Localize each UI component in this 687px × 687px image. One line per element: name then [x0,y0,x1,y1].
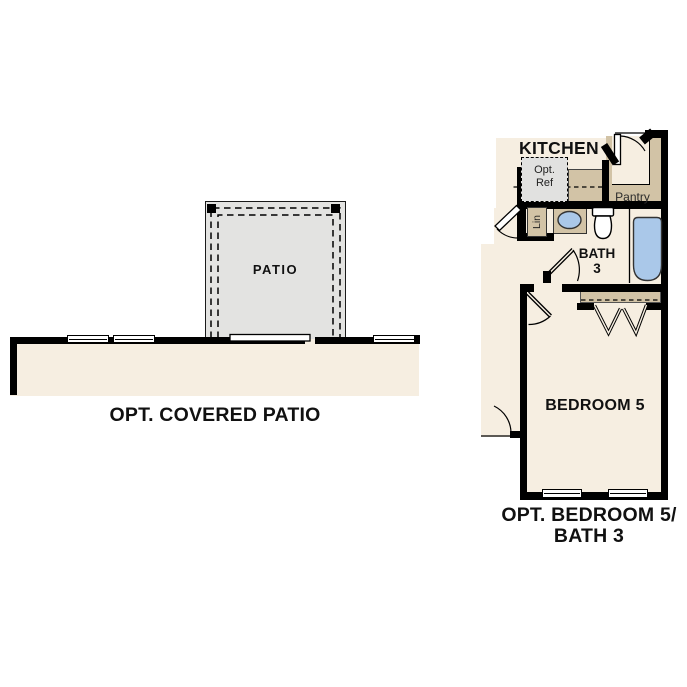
pantry-door-clearance [612,136,650,185]
right-exterior-wall [661,130,668,500]
exterior-wall-return [10,337,17,395]
opt-ref-box: Opt. Ref [521,157,568,202]
window [67,335,109,344]
floorplan-canvas: PATIO OPT. COVERED PATIO KITCHEN Opt. Re… [0,0,687,687]
closet-shelf [580,291,661,303]
sliding-door-gap [305,339,315,344]
exterior-wall-left-segment [10,337,305,344]
window-end-cap [414,335,420,343]
bath-label-line1: BATH [568,246,626,261]
bedroom-left-wall [520,284,527,501]
patio-caption: OPT. COVERED PATIO [10,404,420,427]
bedroom-caption: OPT. BEDROOM 5/ BATH 3 [483,505,687,547]
bath-bedroom-wall-right [562,284,668,292]
window [542,489,582,498]
hall-wall-junction [510,431,521,438]
patio-post-left [207,204,216,213]
kitchen-label: KITCHEN [516,138,602,159]
patio-post-right [331,204,340,213]
closet-stub-right [646,303,661,311]
bedroom-caption-line1: OPT. BEDROOM 5/ [483,505,687,526]
bath-label-line2: 3 [568,261,626,276]
linen-closet: Lin [527,207,547,237]
house-interior-strip [10,344,419,396]
window [373,335,416,344]
patio-room-label: PATIO [205,262,346,277]
bath-door-hinge-stub [543,271,552,283]
bedroom-caption-line2: BATH 3 [483,526,687,547]
bedroom-lower-floor [527,437,661,493]
window [608,489,648,498]
bath-label: BATH 3 [568,246,626,276]
opt-ref-line2: Ref [522,177,567,190]
opt-ref-line1: Opt. [522,164,567,177]
bedroom-label: BEDROOM 5 [522,397,668,415]
pantry-label: Pantry [604,190,661,204]
bath-vanity-counter [553,207,587,234]
window [113,335,155,344]
closet-stub-left [577,303,594,311]
linen-label: Lin [531,214,543,228]
